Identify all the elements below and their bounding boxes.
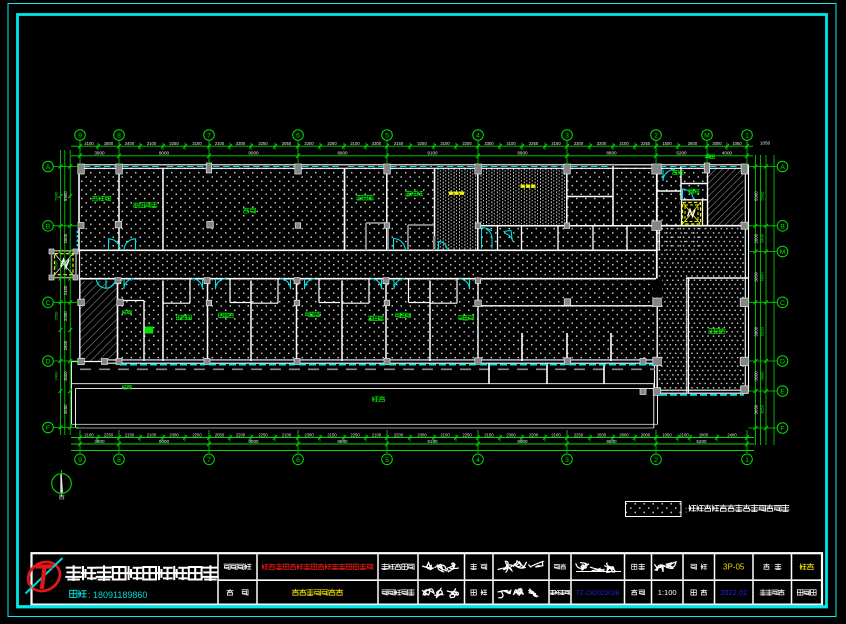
svg-text:M: M (780, 249, 786, 256)
svg-text:8800: 8800 (606, 151, 617, 156)
svg-text:2100: 2100 (551, 432, 561, 437)
svg-text:2400: 2400 (125, 141, 135, 146)
svg-text:2800: 2800 (63, 340, 68, 350)
svg-text:4000: 4000 (722, 151, 733, 156)
svg-text:2250: 2250 (574, 432, 584, 437)
svg-text:2100: 2100 (679, 432, 689, 437)
svg-text:9000: 9000 (159, 439, 170, 444)
svg-text:8900: 8900 (337, 151, 348, 156)
svg-text:2300: 2300 (574, 141, 584, 146)
svg-text:2250: 2250 (529, 141, 539, 146)
svg-text:3650: 3650 (63, 404, 68, 414)
svg-text:3000: 3000 (63, 371, 68, 381)
svg-text:1050: 1050 (732, 141, 742, 146)
svg-text:5200: 5200 (676, 151, 687, 156)
svg-text:2200: 2200 (597, 141, 607, 146)
svg-text:5900: 5900 (54, 191, 59, 201)
svg-text:F: F (780, 426, 784, 433)
svg-text:1800: 1800 (699, 432, 709, 437)
svg-text:F: F (46, 425, 50, 432)
svg-text:2050: 2050 (282, 141, 292, 146)
svg-text:2150: 2150 (192, 141, 202, 146)
svg-text:1: 1 (745, 133, 749, 140)
svg-text:2400: 2400 (727, 432, 737, 437)
svg-text:9000: 9000 (248, 439, 259, 444)
svg-text:1500: 1500 (662, 141, 672, 146)
svg-text:5050: 5050 (754, 271, 759, 281)
svg-text:2250: 2250 (641, 141, 651, 146)
svg-text:8800: 8800 (606, 439, 617, 444)
svg-text:2250: 2250 (104, 432, 114, 437)
svg-text:3000: 3000 (754, 371, 759, 381)
svg-text:3650: 3650 (760, 404, 765, 414)
svg-text:D: D (46, 359, 51, 366)
svg-text:2100: 2100 (84, 141, 94, 146)
svg-text:8900: 8900 (517, 439, 528, 444)
svg-text:2100: 2100 (440, 141, 450, 146)
svg-text:2600: 2600 (688, 141, 698, 146)
svg-text:2250: 2250 (350, 432, 360, 437)
svg-text:2100: 2100 (506, 141, 516, 146)
svg-text:5900: 5900 (754, 326, 759, 336)
svg-text:A: A (780, 164, 785, 171)
svg-text:6: 6 (296, 133, 300, 140)
svg-text:2100: 2100 (147, 141, 157, 146)
svg-text:5: 5 (385, 133, 389, 140)
svg-text:3900: 3900 (94, 151, 105, 156)
svg-text:1:100: 1:100 (658, 588, 677, 597)
svg-text:5900: 5900 (754, 191, 759, 201)
svg-text:2300: 2300 (417, 432, 427, 437)
svg-text:2600: 2600 (63, 233, 68, 243)
svg-text:2100: 2100 (372, 432, 382, 437)
svg-text:9100: 9100 (427, 151, 438, 156)
svg-text:7: 7 (207, 457, 211, 464)
svg-text:3: 3 (565, 133, 569, 140)
svg-text:2550: 2550 (54, 311, 59, 321)
svg-text:7: 7 (207, 133, 211, 140)
svg-text:2150: 2150 (484, 432, 494, 437)
svg-text:2300: 2300 (236, 141, 246, 146)
svg-text:2200: 2200 (236, 432, 246, 437)
svg-text:2300: 2300 (169, 432, 179, 437)
svg-text:2300: 2300 (304, 432, 314, 437)
svg-text:B: B (780, 223, 785, 230)
svg-text:C: C (780, 300, 785, 307)
svg-text:M: M (704, 133, 710, 140)
svg-text:1050: 1050 (760, 141, 771, 146)
svg-text:2200: 2200 (462, 141, 472, 146)
svg-text:2100: 2100 (619, 141, 629, 146)
svg-text:2300: 2300 (372, 141, 382, 146)
svg-text:1800: 1800 (104, 141, 114, 146)
svg-text:9000: 9000 (248, 151, 259, 156)
svg-text:2050: 2050 (215, 432, 225, 437)
svg-text:8: 8 (117, 133, 121, 140)
svg-text:3650: 3650 (754, 404, 759, 414)
svg-text:3000: 3000 (760, 371, 765, 381)
svg-text:2100: 2100 (350, 141, 360, 146)
svg-text:2400: 2400 (54, 371, 59, 381)
svg-text:2250: 2250 (327, 141, 337, 146)
svg-text:9: 9 (78, 133, 82, 140)
svg-text:2150: 2150 (394, 141, 404, 146)
svg-text:4: 4 (476, 133, 480, 140)
svg-text:2150: 2150 (125, 432, 135, 437)
svg-text:2600: 2600 (54, 260, 59, 270)
svg-text:5050: 5050 (760, 272, 765, 282)
svg-text:9000: 9000 (159, 151, 170, 156)
svg-text:5: 5 (385, 457, 389, 464)
svg-text::: : (685, 506, 687, 515)
svg-text:3: 3 (565, 457, 569, 464)
svg-text:1500: 1500 (597, 432, 607, 437)
svg-text:C: C (46, 300, 51, 307)
svg-text:2250: 2250 (258, 141, 268, 146)
svg-text:2300: 2300 (484, 141, 494, 146)
svg-text:2022.02: 2022.02 (720, 588, 747, 597)
svg-text:2600: 2600 (760, 233, 765, 243)
svg-text:2000: 2000 (712, 141, 722, 146)
svg-text:9100: 9100 (427, 439, 438, 444)
svg-text:2250: 2250 (462, 432, 472, 437)
svg-text:2200: 2200 (304, 141, 314, 146)
svg-text:2100: 2100 (440, 432, 450, 437)
svg-text:2300: 2300 (506, 432, 516, 437)
svg-text:2150: 2150 (327, 432, 337, 437)
svg-text:3900: 3900 (94, 439, 105, 444)
svg-text:2200: 2200 (394, 432, 404, 437)
svg-text:6: 6 (296, 457, 300, 464)
svg-text:2600: 2600 (619, 432, 629, 437)
svg-text:3P-05: 3P-05 (723, 563, 745, 572)
svg-text:2250: 2250 (258, 432, 268, 437)
svg-text:D: D (780, 359, 785, 366)
svg-text:2100: 2100 (147, 432, 157, 437)
svg-text:2250: 2250 (417, 141, 427, 146)
svg-text:2350: 2350 (63, 311, 68, 321)
svg-text:1050: 1050 (662, 432, 672, 437)
svg-text:9: 9 (78, 457, 82, 464)
svg-text:2600: 2600 (754, 233, 759, 243)
svg-text:2550: 2550 (63, 260, 68, 270)
svg-text:5900: 5900 (760, 326, 765, 336)
svg-text:2000: 2000 (641, 432, 651, 437)
svg-text:8900: 8900 (337, 439, 348, 444)
svg-text:2200: 2200 (529, 432, 539, 437)
svg-text:1: 1 (745, 457, 749, 464)
svg-text:A: A (46, 164, 51, 171)
svg-text:2250: 2250 (169, 141, 179, 146)
svg-text:E: E (780, 389, 785, 396)
svg-text:2100: 2100 (282, 432, 292, 437)
svg-text:4: 4 (476, 457, 480, 464)
svg-text:5900: 5900 (63, 191, 68, 201)
svg-text:2: 2 (654, 133, 658, 140)
svg-text:5900: 5900 (760, 191, 765, 201)
svg-text:2400: 2400 (63, 285, 68, 295)
svg-text:5200: 5200 (696, 439, 707, 444)
svg-text:2250: 2250 (192, 432, 202, 437)
svg-text:TZ-C8202202B: TZ-C8202202B (576, 590, 620, 597)
svg-text:8: 8 (117, 457, 121, 464)
svg-text:2: 2 (654, 457, 658, 464)
svg-text:2100: 2100 (215, 141, 225, 146)
svg-text:B: B (46, 223, 51, 230)
svg-text:2100: 2100 (84, 432, 94, 437)
svg-text:2150: 2150 (551, 141, 561, 146)
svg-text:: 18091189860: : 18091189860 (88, 590, 147, 600)
svg-text:8900: 8900 (517, 151, 528, 156)
